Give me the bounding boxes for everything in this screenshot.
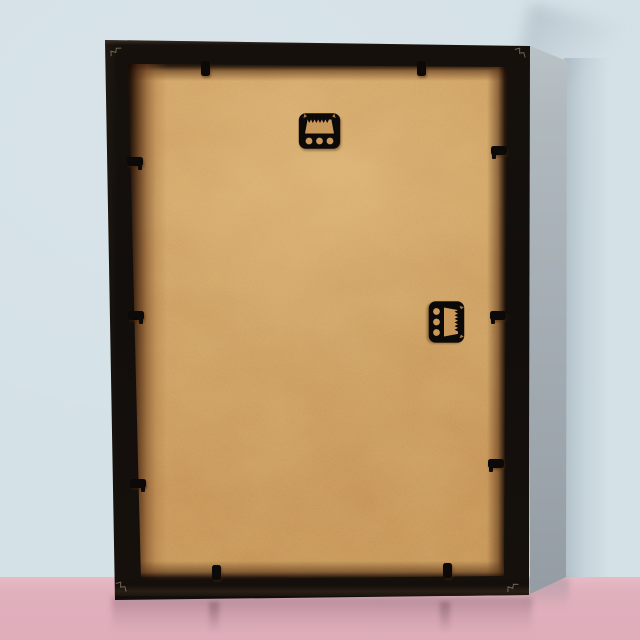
spring-clip bbox=[443, 563, 452, 578]
spring-clip bbox=[201, 61, 210, 76]
frame-bottom-sheen bbox=[110, 585, 532, 596]
spring-clip bbox=[490, 311, 506, 320]
spring-clip bbox=[130, 479, 146, 488]
sawtooth-hanger-top bbox=[298, 112, 341, 150]
spring-clip bbox=[128, 311, 144, 320]
sawtooth-hanger-icon bbox=[298, 112, 341, 150]
sawtooth-hanger-right bbox=[428, 301, 466, 344]
spring-clip bbox=[212, 565, 221, 580]
spring-clip bbox=[127, 157, 143, 166]
sawtooth-hanger-icon bbox=[428, 301, 466, 344]
product-photo-scene bbox=[0, 0, 640, 640]
spring-clip bbox=[417, 61, 426, 76]
clip-floor-reflection bbox=[209, 602, 219, 636]
wall-cast-shadow bbox=[564, 58, 616, 578]
clip-floor-reflection bbox=[440, 602, 450, 636]
spring-clip bbox=[491, 146, 507, 155]
frame-floor-reflection bbox=[112, 597, 532, 637]
spring-clip bbox=[488, 459, 504, 468]
